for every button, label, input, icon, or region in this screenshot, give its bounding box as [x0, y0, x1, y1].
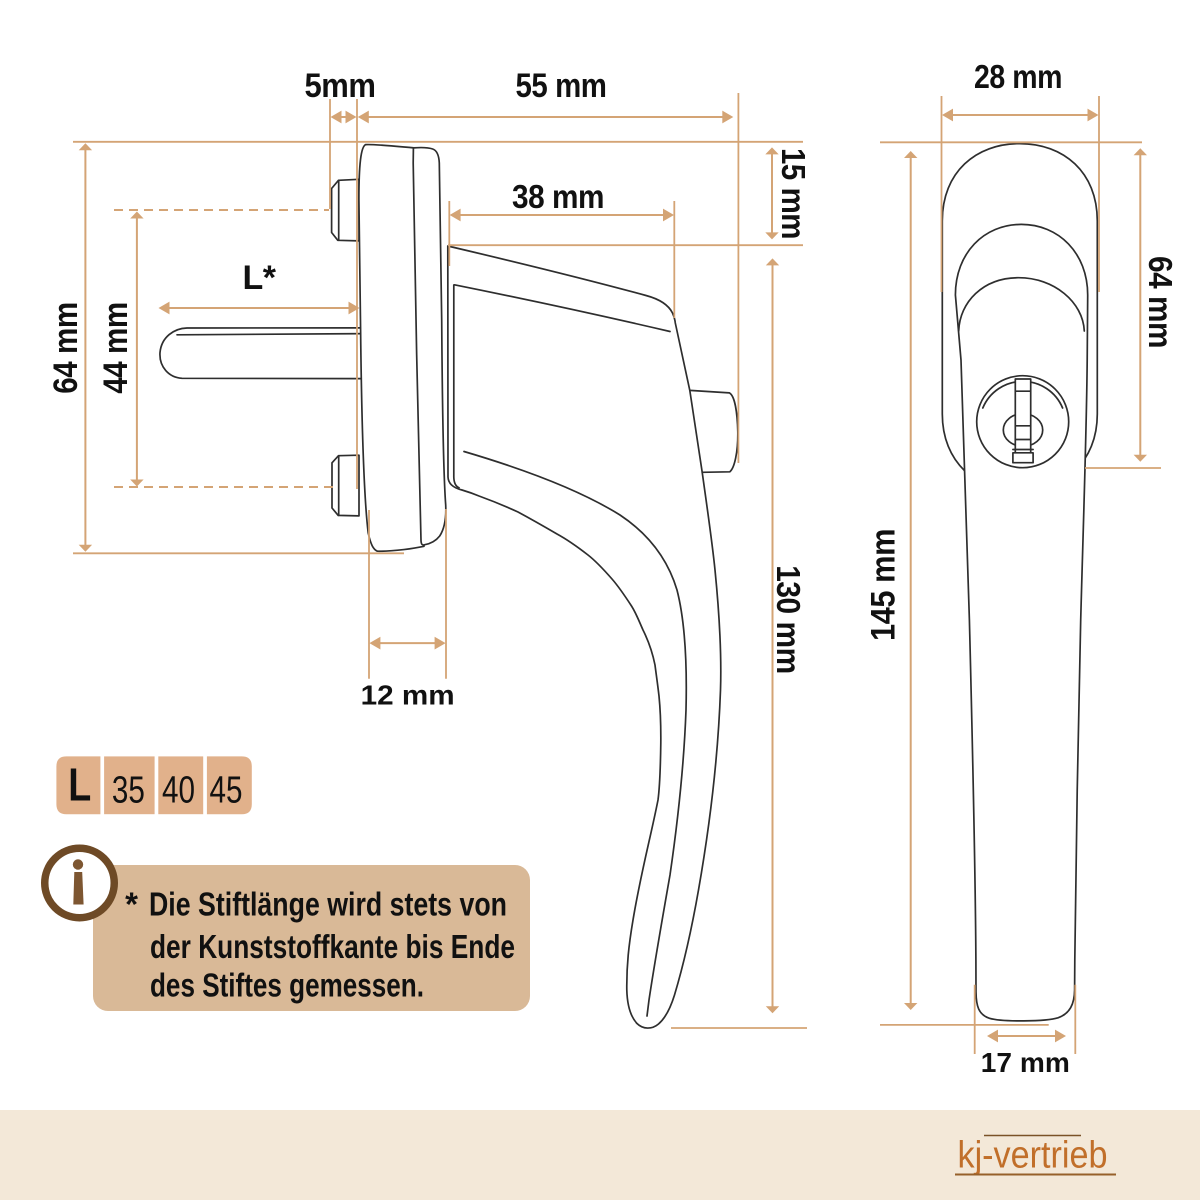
- svg-text:64 mm: 64 mm: [47, 302, 85, 394]
- svg-text:17 mm: 17 mm: [981, 1047, 1070, 1078]
- svg-text:L*: L*: [243, 259, 277, 297]
- svg-text:64 mm: 64 mm: [1142, 256, 1179, 348]
- svg-text:28 mm: 28 mm: [974, 58, 1062, 95]
- svg-text:40: 40: [162, 769, 195, 811]
- svg-text:15 mm: 15 mm: [775, 148, 812, 239]
- svg-text:130 mm: 130 mm: [770, 565, 807, 674]
- svg-text:55 mm: 55 mm: [516, 67, 607, 105]
- svg-text:kj-vertrieb: kj-vertrieb: [958, 1135, 1108, 1177]
- svg-text:44 mm: 44 mm: [97, 302, 135, 394]
- svg-text:38 mm: 38 mm: [512, 178, 604, 215]
- svg-text:45: 45: [210, 769, 243, 811]
- svg-text:Die Stiftlänge wird stets von: Die Stiftlänge wird stets von: [149, 886, 507, 923]
- svg-text:35: 35: [112, 769, 145, 811]
- svg-text:12 mm: 12 mm: [361, 680, 455, 711]
- svg-text:des Stiftes gemessen.: des Stiftes gemessen.: [150, 967, 424, 1004]
- svg-text:145 mm: 145 mm: [865, 529, 903, 641]
- svg-text:5mm: 5mm: [305, 67, 376, 105]
- svg-text:der Kunststoffkante bis Ende: der Kunststoffkante bis Ende: [150, 928, 515, 965]
- svg-text:L: L: [68, 759, 91, 811]
- svg-text:*: *: [125, 886, 138, 923]
